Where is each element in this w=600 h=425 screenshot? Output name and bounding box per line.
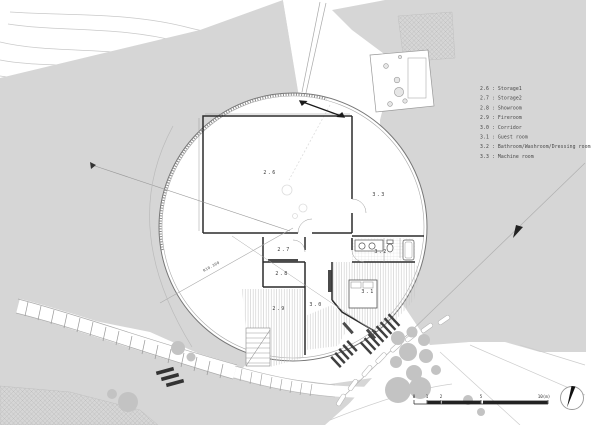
legend-item: 2.7 : Storage2 [480,94,600,104]
legend: 2.6 : Storage1 2.7 : Storage2 2.8 : Show… [480,84,600,162]
legend-item: 3.0 : Corridor [480,123,600,133]
site-plan-svg: R10.300 [0,0,600,425]
room-label-30: 3.0 [309,302,322,308]
room-label-31: 3.1 [361,289,374,295]
paper-margin [586,0,600,425]
legend-item: 2.8 : Showroom [480,103,600,113]
legend-item: 3.3 : Machine room [480,152,600,162]
legend-item: 3.1 : Guest room [480,133,600,143]
room-label-33: 3.3 [372,192,385,198]
stairs [246,328,270,366]
room-label-27: 2.7 [277,247,290,253]
room-label-28: 2.8 [275,271,288,277]
north-arrow [561,386,584,410]
legend-item: 3.2 : Bathroom/Washroom/Dressing room [480,142,600,152]
room-label-26: 2.6 [263,170,276,176]
legend-item: 2.9 : Fireroom [480,113,600,123]
scale-tick-10m: 10(m) [538,394,551,399]
room-label-32: 3.2 [374,249,387,255]
legend-item: 2.6 : Storage1 [480,84,600,94]
site-plan-canvas: R10.300 [0,0,600,425]
room-label-29: 2.9 [272,306,285,312]
entry-structure [370,50,434,112]
